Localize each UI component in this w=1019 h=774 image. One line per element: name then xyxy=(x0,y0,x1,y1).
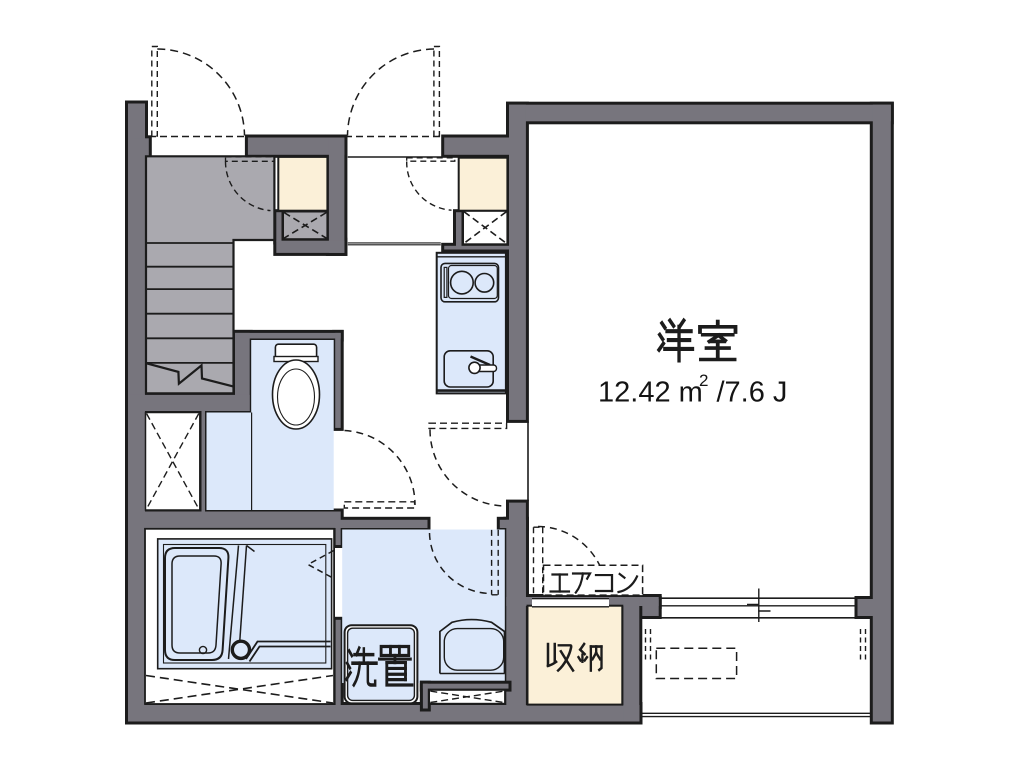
svg-text:/7.6 J: /7.6 J xyxy=(717,377,788,409)
svg-text:2: 2 xyxy=(699,371,708,390)
svg-text:12.42 m: 12.42 m xyxy=(598,377,703,409)
